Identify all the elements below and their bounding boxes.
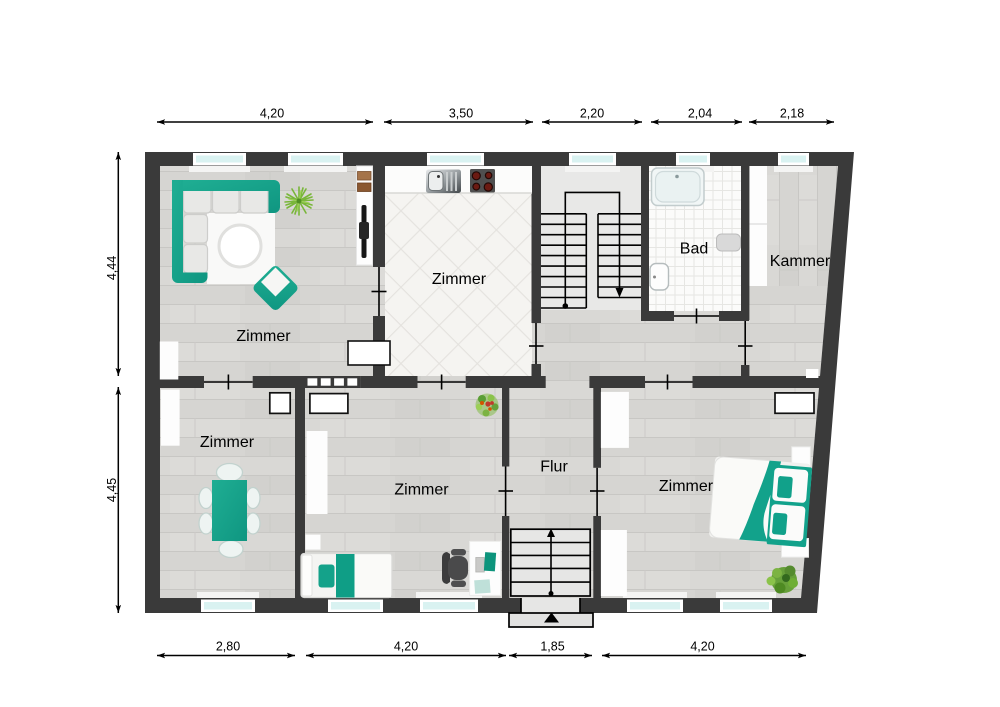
svg-text:4,20: 4,20	[260, 107, 284, 121]
svg-text:Bad: Bad	[680, 241, 708, 258]
svg-text:2,18: 2,18	[780, 107, 804, 121]
svg-text:2,80: 2,80	[216, 640, 240, 654]
svg-text:1,85: 1,85	[540, 640, 564, 654]
svg-text:4,20: 4,20	[394, 640, 418, 654]
svg-text:Zimmer: Zimmer	[659, 478, 714, 495]
svg-text:4,45: 4,45	[105, 478, 119, 502]
svg-text:Zimmer: Zimmer	[236, 328, 291, 345]
svg-text:Flur: Flur	[540, 459, 568, 476]
svg-text:2,20: 2,20	[580, 107, 604, 121]
svg-text:Zimmer: Zimmer	[432, 271, 487, 288]
svg-text:2,04: 2,04	[688, 107, 712, 121]
svg-text:3,50: 3,50	[449, 107, 473, 121]
svg-text:Zimmer: Zimmer	[200, 434, 255, 451]
svg-text:Zimmer: Zimmer	[394, 482, 449, 499]
svg-text:4,20: 4,20	[690, 640, 714, 654]
svg-text:4,44: 4,44	[105, 256, 119, 280]
svg-text:Kammer: Kammer	[770, 253, 831, 270]
